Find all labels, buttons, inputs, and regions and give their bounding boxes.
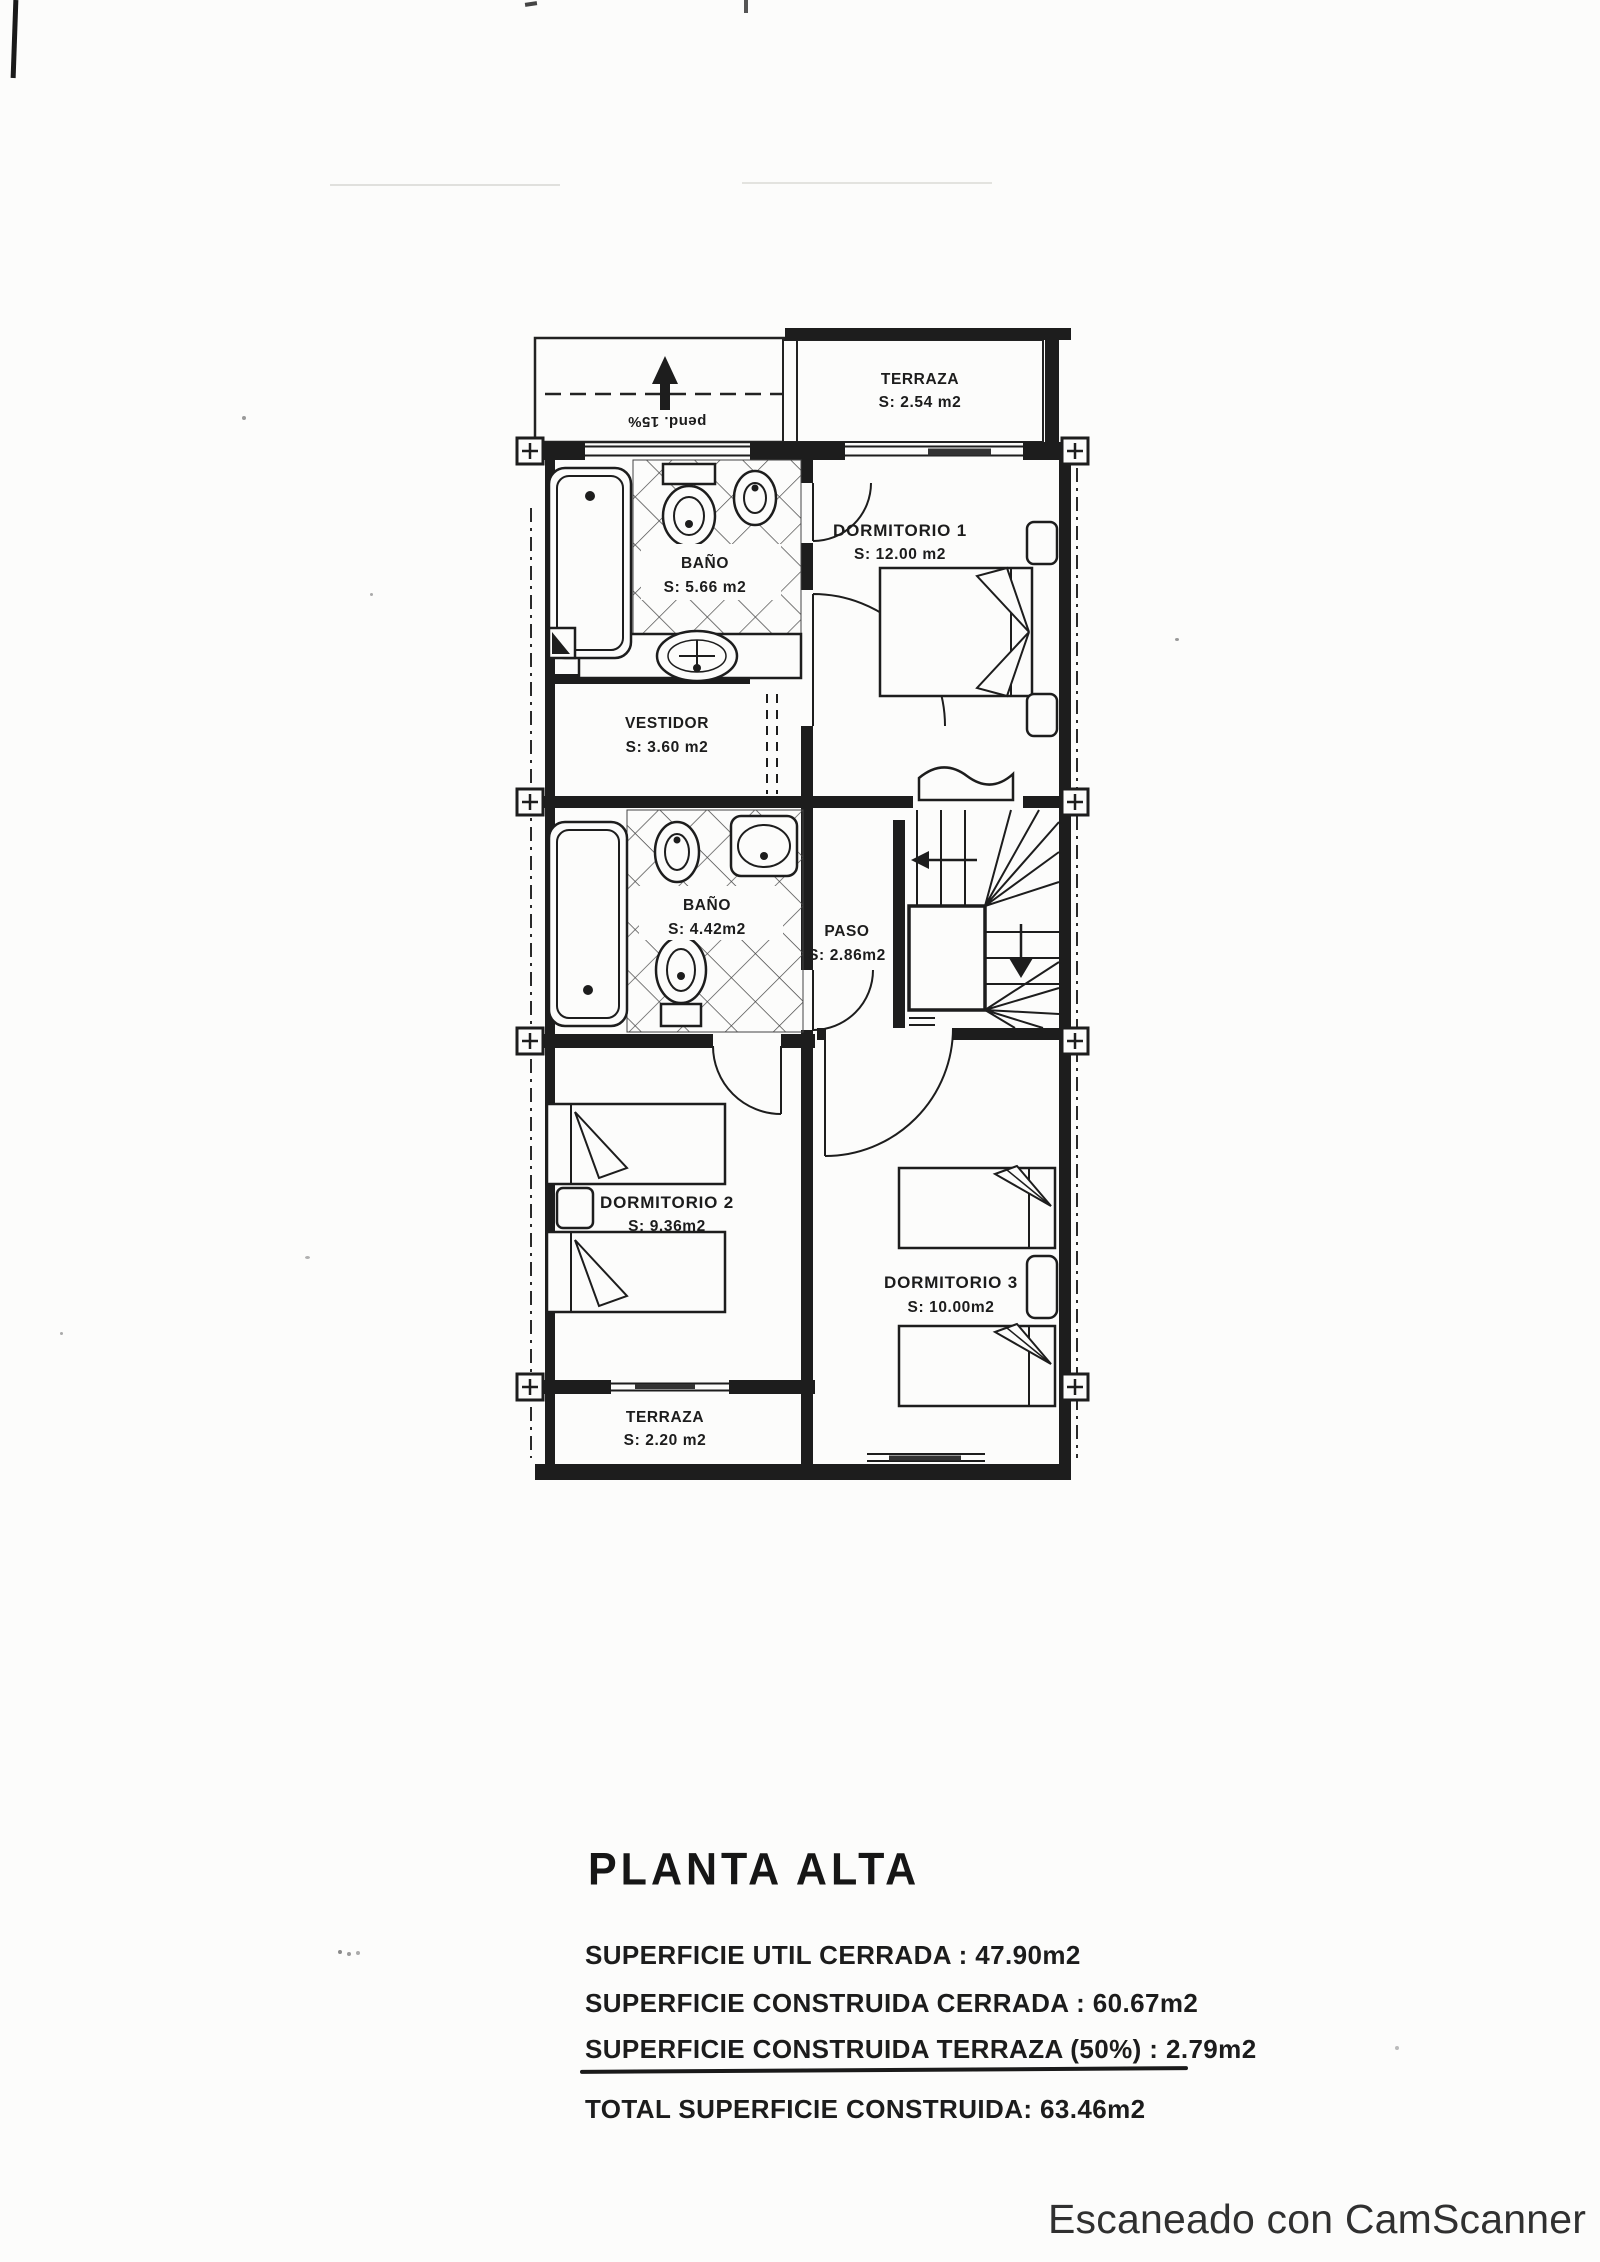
- terraza-top: TERRAZA S: 2.54 m2: [879, 371, 962, 411]
- dormitorio-1: DORMITORIO 1 S: 12.00 m2: [833, 521, 1057, 800]
- nightstand-icon: [557, 1188, 593, 1228]
- bidet-icon: [655, 822, 699, 882]
- room-area-terraza-top: S: 2.54 m2: [879, 394, 962, 411]
- bed-icon: [899, 1168, 1055, 1248]
- dresser-icon: [919, 767, 1013, 800]
- staircase: [909, 810, 1059, 1028]
- scan-artifact: [60, 1332, 63, 1335]
- room-area-dormitorio3: S: 10.00m2: [908, 1299, 995, 1316]
- scan-artifact: [305, 1256, 310, 1259]
- scanned-floor-plan-page: pend. 15%: [0, 0, 1600, 2262]
- bed-icon: [547, 1232, 725, 1312]
- bidet-icon: [734, 471, 776, 525]
- scan-artifact: [1175, 638, 1179, 641]
- room-label-paso: PASO: [824, 923, 869, 940]
- scan-artifact: [742, 182, 992, 184]
- door-bano2: [813, 970, 873, 1030]
- slope-arrow-icon: [652, 356, 678, 384]
- scan-artifact: [744, 0, 748, 13]
- toilet-icon: [656, 937, 706, 1026]
- scan-artifact: [330, 184, 560, 186]
- summary-line: SUPERFICIE UTIL CERRADA : 47.90m2: [585, 1940, 1081, 1971]
- terraza-bottom: TERRAZA S: 2.20 m2: [624, 1409, 707, 1449]
- dormitorio-3: DORMITORIO 3 S: 10.00m2: [884, 1166, 1057, 1406]
- room-label-dormitorio3: DORMITORIO 3: [884, 1273, 1018, 1292]
- room-area-bano1: S: 5.66 m2: [664, 579, 747, 596]
- summary-line: SUPERFICIE CONSTRUIDA CERRADA : 60.67m2: [585, 1988, 1198, 2019]
- vestidor: VESTIDOR S: 3.60 m2: [625, 694, 777, 794]
- roof-area: pend. 15%: [535, 338, 797, 442]
- room-label-dormitorio2: DORMITORIO 2: [600, 1193, 734, 1212]
- room-area-vestidor: S: 3.60 m2: [626, 739, 709, 756]
- floor-plan: pend. 15%: [515, 328, 1090, 1490]
- scan-artifact: [525, 1, 537, 7]
- room-label-terraza-bottom: TERRAZA: [626, 1409, 704, 1426]
- terraza-top-outline: [797, 340, 1043, 442]
- scan-artifact: [11, 0, 19, 78]
- nightstand-icon: [1027, 1256, 1057, 1318]
- dormitorio-2: DORMITORIO 2 S: 9.36m2: [547, 1104, 734, 1312]
- room-area-paso: S: 2.86m2: [808, 947, 886, 964]
- bathroom-2: BAÑO S: 4.42m2: [549, 810, 803, 1032]
- summary-underline: [580, 2066, 1188, 2074]
- room-label-bano2: BAÑO: [683, 896, 731, 914]
- room-area-terraza-bottom: S: 2.20 m2: [624, 1432, 707, 1449]
- sink-icon: [657, 631, 737, 681]
- slope-note: pend. 15%: [628, 413, 707, 430]
- plan-title: PLANTA ALTA: [588, 1845, 920, 1896]
- bathroom-1: BAÑO S: 5.66 m2: [549, 460, 801, 681]
- drain-icon: [549, 628, 575, 658]
- scan-artifact: [338, 1950, 342, 1954]
- room-label-vestidor: VESTIDOR: [625, 715, 709, 732]
- scan-artifact: [242, 416, 246, 420]
- room-area-dormitorio1: S: 12.00 m2: [854, 546, 946, 563]
- stair-direction-arrow-icon: [911, 851, 929, 869]
- toilet-icon: [663, 464, 715, 546]
- summary-total-line: TOTAL SUPERFICIE CONSTRUIDA: 63.46m2: [585, 2094, 1146, 2125]
- room-area-dormitorio2: S: 9.36m2: [628, 1218, 706, 1235]
- room-label-terraza-top: TERRAZA: [881, 371, 959, 388]
- nightstand-icon: [1027, 522, 1057, 564]
- room-label-bano1: BAÑO: [681, 554, 729, 572]
- bed-icon: [547, 1104, 725, 1184]
- scan-artifact: [370, 593, 373, 596]
- bathtub-icon: [549, 822, 627, 1026]
- room-label-dormitorio1: DORMITORIO 1: [833, 521, 967, 540]
- bed-icon: [899, 1326, 1055, 1406]
- stair-direction-arrow-icon: [1009, 958, 1033, 978]
- nightstand-icon: [1027, 694, 1057, 736]
- paso: PASO S: 2.86m2: [808, 923, 886, 964]
- room-area-bano2: S: 4.42m2: [668, 921, 746, 938]
- summary-line: SUPERFICIE CONSTRUIDA TERRAZA (50%) : 2.…: [585, 2034, 1257, 2065]
- camscanner-watermark: Escaneado con CamScanner: [1048, 2196, 1586, 2243]
- door-hall-dormitorio3: [825, 1028, 953, 1156]
- sink-icon: [731, 816, 797, 876]
- scan-artifact: [1395, 2046, 1399, 2050]
